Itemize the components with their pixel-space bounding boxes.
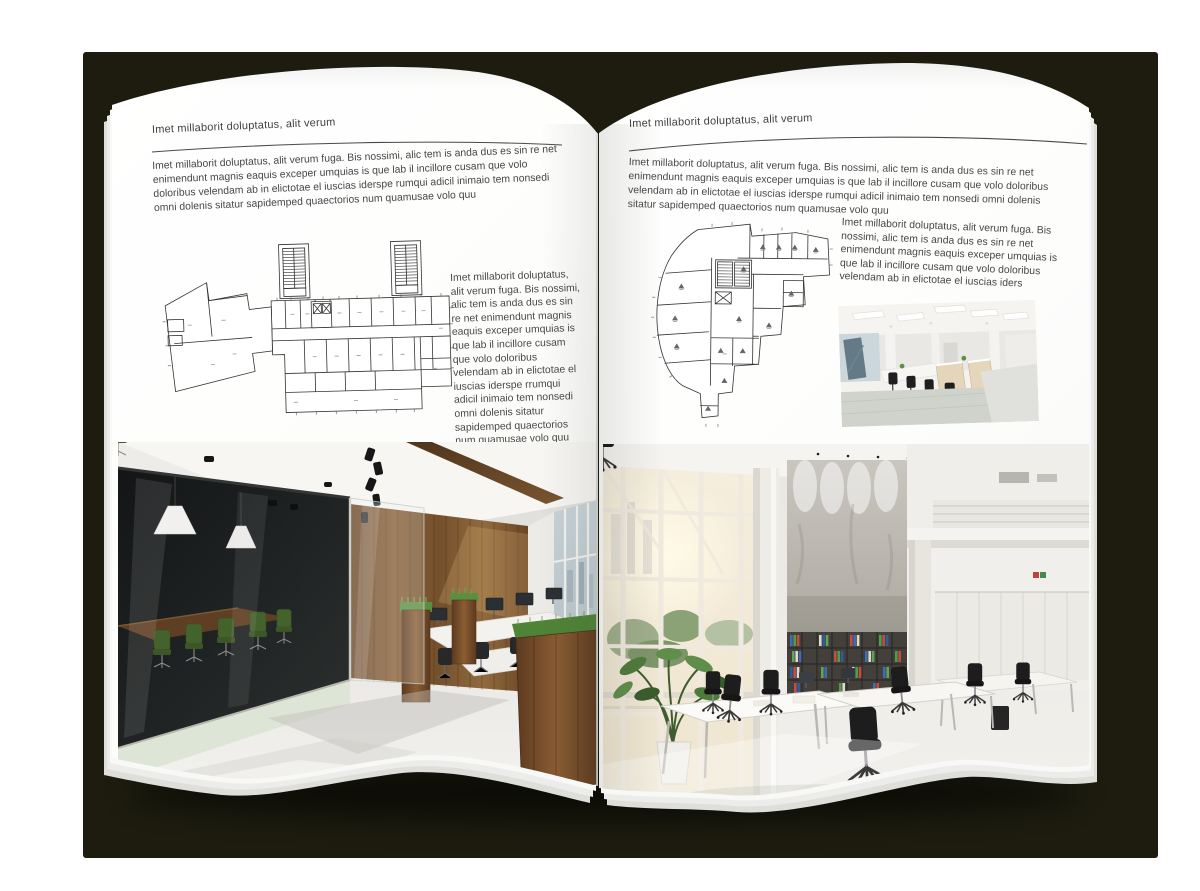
safety-sign-icon bbox=[1033, 572, 1039, 578]
spine-gap bbox=[596, 134, 598, 786]
safety-sign-icon bbox=[1040, 572, 1046, 578]
right-header-rule bbox=[629, 132, 1087, 156]
office-photo-right bbox=[603, 444, 1089, 808]
right-intro-paragraph: Imet millaborit doluptatus, alit verum f… bbox=[628, 156, 1053, 223]
office-photo-small bbox=[838, 300, 1039, 427]
left-page: Imet millaborit doluptatus, alit verum I… bbox=[110, 60, 599, 805]
right-side-paragraph: Imet millaborit doluptatus, alit verum f… bbox=[839, 216, 1061, 293]
left-page-header: Imet millaborit doluptatus, alit verum bbox=[152, 116, 336, 137]
office-photo-left bbox=[118, 442, 597, 805]
left-side-column: Imet millaborit doluptatus, alit verum f… bbox=[450, 268, 585, 449]
floor-plan-right bbox=[630, 217, 837, 431]
stair-tower-icon bbox=[279, 241, 422, 299]
right-page: Imet millaborit doluptatus, alit verum I… bbox=[597, 60, 1090, 808]
floor-plan-left bbox=[152, 238, 457, 428]
right-page-header: Imet millaborit doluptatus, alit verum bbox=[629, 112, 813, 131]
magazine-mockup: { "palette": { "backdrop": "#1d1c0f", "p… bbox=[0, 0, 1200, 891]
